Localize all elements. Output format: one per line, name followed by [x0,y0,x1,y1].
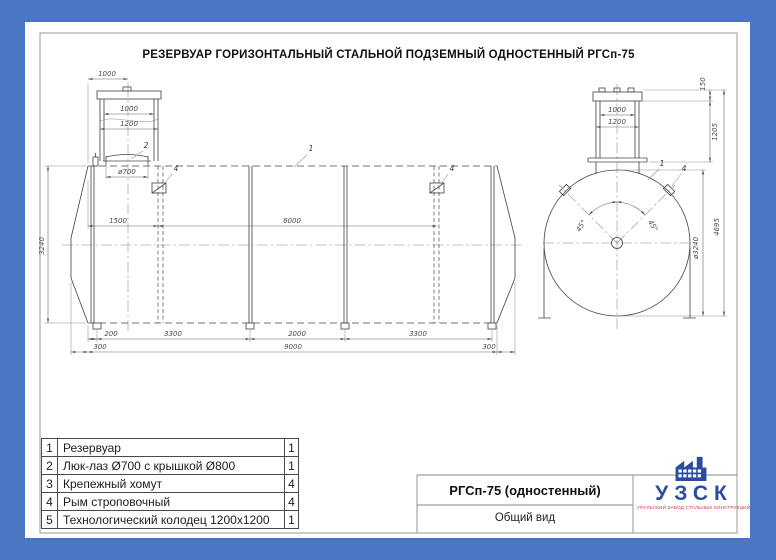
part-qty: 1 [285,511,299,529]
callout-lug-right: 4 [450,164,455,173]
parts-table: 1 Резервуар 1 2 Люк-лаз Ø700 с крышкой Ø… [41,438,299,529]
logo-abbr: УЗСК [637,483,745,505]
dim-well-offset: 1000 [98,70,116,78]
part-name: Резервуар [58,439,285,457]
dim-bay3: 3300 [409,330,427,338]
dim-end-well-outer: 1200 [608,118,626,126]
callout-tank: 1 [309,144,314,153]
lifting-lugs [152,183,444,193]
dim-bay2: 2000 [288,330,306,338]
part-name: Рым строповочный [58,493,285,511]
dim-shell-length: 9000 [284,343,302,351]
manhole [93,153,151,166]
support-feet [93,323,496,329]
dim-diameter: ø3240 [692,236,700,260]
end-view-callouts: 1 4 [648,159,687,186]
table-row: 3 Крепежный хомут 4 [42,475,299,493]
table-row: 2 Люк-лаз Ø700 с крышкой Ø800 1 [42,457,299,475]
part-qty: 4 [285,493,299,511]
part-name: Технологический колодец 1200х1200 [58,511,285,529]
part-qty: 4 [285,475,299,493]
callout-end-tank: 1 [660,159,665,168]
part-number: 2 [42,457,58,475]
dim-cover-height: 150 [699,77,707,91]
callout-end-lug: 4 [682,164,687,173]
dim-neck-height: 1205 [711,123,719,141]
table-row: 1 Резервуар 1 [42,439,299,457]
callout-lug-left: 4 [174,164,179,173]
dim-bay1: 3300 [164,330,182,338]
main-view: 1000 1000 1200 ø700 1500 6000 3240 [38,70,524,355]
main-view-dimensions: 1000 1000 1200 ø700 1500 6000 3240 [38,70,515,355]
table-row: 5 Технологический колодец 1200х1200 1 [42,511,299,529]
view-name: Общий вид [417,508,633,528]
company-logo: УЗСК УРАЛЬСКИЙ ЗАВОД СТАЛЬНЫХ КОНСТРУКЦИ… [637,455,745,511]
end-lug-left [559,184,570,195]
dim-end-well-inner: 1000 [608,106,626,114]
callout-manhole: 2 [144,141,149,150]
end-lug-right [663,184,674,195]
end-view-well [588,88,647,174]
dim-manhole-dia: ø700 [117,168,136,176]
part-number: 4 [42,493,58,511]
table-row: 4 Рым строповочный 4 [42,493,299,511]
dim-well-inner: 1000 [120,105,138,113]
dim-left-to-clamp: 1500 [109,217,127,225]
end-view: 45° 45° 1000 1200 150 1205 4695 [538,77,727,332]
part-name: Люк-лаз Ø700 с крышкой Ø800 [58,457,285,475]
part-qty: 1 [285,457,299,475]
dim-head-right: 300 [482,343,496,351]
dim-clamp-span: 6000 [283,217,301,225]
part-number: 1 [42,439,58,457]
dim-shell-height: 3240 [38,237,46,255]
dim-foot-offset: 200 [104,330,118,338]
part-name: Крепежный хомут [58,475,285,493]
dim-total-height: 4695 [713,218,721,236]
part-number: 5 [42,511,58,529]
logo-tagline: УРАЛЬСКИЙ ЗАВОД СТАЛЬНЫХ КОНСТРУКЦИЙ [637,505,745,511]
factory-icon [672,455,710,482]
part-number: 3 [42,475,58,493]
dim-angle-right: 45° [646,219,659,234]
model-designation: РГСп-75 (одностенный) [417,480,633,502]
dim-well-outer: 1200 [120,120,138,128]
screenshot-root: { "sheet": { "title": "РЕЗЕРВУАР ГОРИЗОН… [0,0,776,560]
part-qty: 1 [285,439,299,457]
dim-head-left: 300 [93,343,107,351]
clamp-lines [158,166,439,323]
main-view-callouts: 2 4 1 4 [131,141,455,184]
dim-angle-left: 45° [575,219,588,234]
